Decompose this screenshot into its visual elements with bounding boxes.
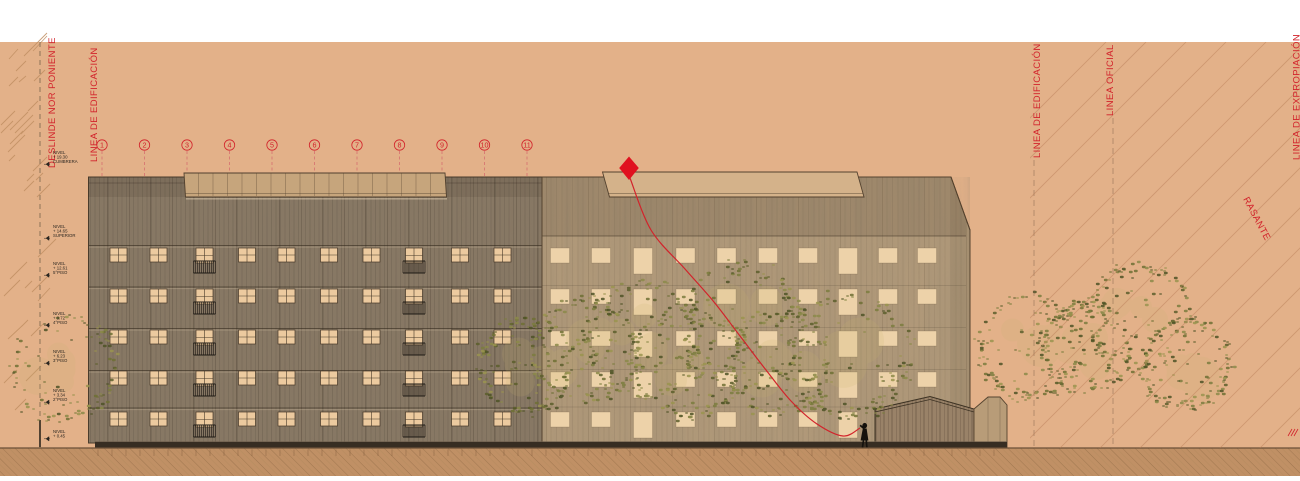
svg-text:5: 5 [270, 141, 274, 150]
svg-text:3°PISO: 3°PISO [53, 358, 68, 363]
svg-text:2°PISO: 2°PISO [53, 397, 68, 402]
svg-text:10: 10 [481, 141, 489, 150]
svg-text:9: 9 [440, 141, 444, 150]
svg-text:3: 3 [185, 141, 189, 150]
svg-text:+ 0.45: + 0.45 [53, 433, 66, 438]
svg-text:4°PISO: 4°PISO [53, 320, 68, 325]
svg-text:LINEA DE EXPROPIACIÓN: LINEA DE EXPROPIACIÓN [1292, 34, 1300, 160]
svg-text:SUPERIOR: SUPERIOR [53, 233, 75, 238]
svg-text:6: 6 [313, 141, 317, 150]
svg-text:LINEA DE EDIFICACIÓN: LINEA DE EDIFICACIÓN [89, 47, 100, 162]
svg-text:LINEA DE EDIFICACIÓN: LINEA DE EDIFICACIÓN [1032, 43, 1043, 158]
svg-text:11: 11 [523, 141, 530, 150]
svg-text:5°PISO: 5°PISO [53, 270, 68, 275]
svg-text:LINEA OFICIAL: LINEA OFICIAL [1105, 44, 1116, 116]
svg-text:2: 2 [143, 141, 147, 150]
svg-text:4: 4 [228, 141, 232, 150]
svg-text:1: 1 [100, 141, 104, 150]
svg-text:7: 7 [355, 141, 359, 150]
svg-text:8: 8 [398, 141, 402, 150]
svg-text:CUMBRERA: CUMBRERA [53, 159, 78, 164]
svg-text:DESLINDE NOR PONIENTE: DESLINDE NOR PONIENTE [47, 37, 58, 168]
